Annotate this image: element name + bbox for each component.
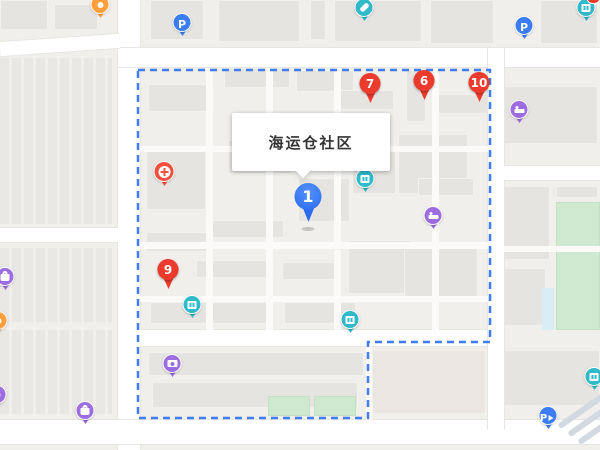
map-shape [432, 68, 439, 330]
poi-icon [346, 316, 355, 324]
map-shape [542, 288, 554, 330]
info-window-pointer [296, 164, 310, 178]
poi-parking-top-right[interactable] [516, 17, 533, 43]
map-shape [218, 0, 300, 42]
marker-tail [188, 312, 196, 322]
marker-head [511, 101, 528, 118]
marker-head [586, 368, 600, 385]
marker-shadow [302, 227, 315, 231]
marker-head [425, 207, 442, 224]
marker-tail [81, 418, 89, 428]
marker-number: 10 [471, 76, 488, 90]
marker-head: 6 [414, 70, 435, 91]
map-shape [556, 202, 600, 330]
marker-head [516, 17, 533, 34]
map-shape [148, 84, 214, 112]
map-viewport[interactable]: 1 7 6 [0, 0, 600, 450]
marker-pin-10[interactable]: 10 [469, 72, 490, 107]
marker-tail [419, 89, 429, 105]
marker-head [155, 162, 174, 181]
marker-number: 6 [420, 74, 428, 88]
marker-tail [582, 15, 590, 25]
poi-gcp-pharmacy[interactable] [356, 0, 373, 25]
marker-tail [0, 402, 1, 412]
map-shape [418, 178, 474, 196]
map-shape [310, 0, 326, 40]
poi-icon [167, 360, 177, 367]
marker-head [184, 296, 201, 313]
poi-dental-clinic[interactable] [155, 162, 174, 190]
marker-tail [302, 207, 314, 228]
road [118, 48, 600, 67]
map-shape [556, 186, 598, 198]
poi-icon [540, 406, 556, 425]
marker-tail [160, 180, 168, 190]
marker-head: 1 [578, 0, 595, 16]
marker-pin-9[interactable]: 9 [158, 259, 179, 294]
poi-haiyuncang[interactable] [357, 170, 374, 196]
poi-icon [81, 408, 90, 415]
marker-number: 9 [164, 263, 172, 277]
poi-parking-bottom-right[interactable] [540, 407, 557, 433]
info-window[interactable]: 海运仓社区 [232, 113, 390, 171]
road [118, 0, 140, 450]
marker-head [356, 0, 373, 16]
marker-pin-7[interactable]: 7 [360, 73, 381, 108]
poi-icon [582, 4, 591, 12]
marker-head [342, 311, 359, 328]
poi-wanguohui-fruit[interactable] [0, 268, 14, 294]
poi-icon [361, 175, 370, 183]
marker-head: 9 [158, 259, 179, 280]
map-shape [224, 68, 290, 88]
poi-beimencang[interactable] [342, 311, 359, 337]
poi-left-edge[interactable] [0, 386, 6, 412]
poi-icon [188, 301, 197, 309]
marker-head [540, 407, 557, 424]
poi-icon [97, 2, 103, 8]
map-shape [504, 268, 546, 326]
map-shape [430, 0, 494, 44]
marker-tail [590, 384, 598, 394]
poi-hengxiangmei-photo[interactable] [164, 355, 181, 381]
marker-number: 1 [302, 187, 313, 206]
marker-head: 10 [469, 72, 490, 93]
marker-head [0, 312, 7, 329]
poi-icon [520, 16, 528, 35]
road [504, 166, 600, 180]
map-shape [206, 68, 213, 330]
marker-head: 7 [360, 73, 381, 94]
marker-head: 1 [295, 183, 322, 210]
poi-restaurant[interactable] [0, 312, 7, 338]
map-shape [268, 396, 310, 416]
poi-noodle-shop[interactable] [92, 0, 109, 22]
marker-tail [96, 12, 104, 22]
marker-tail [361, 186, 369, 196]
map-shape [404, 248, 478, 302]
road [488, 48, 504, 430]
marker-tail [346, 327, 354, 337]
poi-icon [1, 274, 10, 281]
marker-tail [515, 117, 523, 127]
poi-icon [359, 2, 370, 13]
marker-head [0, 386, 6, 403]
road [140, 330, 490, 346]
marker-head [164, 355, 181, 372]
map-shape [504, 246, 600, 252]
map-shape [334, 0, 422, 42]
marker-tail [365, 92, 375, 108]
map-shape [314, 396, 356, 416]
marker-head [0, 268, 14, 285]
map-shape [0, 0, 48, 30]
map-shape [0, 58, 112, 224]
info-window-title: 海运仓社区 [268, 132, 353, 153]
marker-pin-6[interactable]: 6 [414, 70, 435, 105]
marker-head [357, 170, 374, 187]
map-shape [212, 220, 284, 238]
map-shape [140, 242, 488, 249]
poi-zhongqing-hotel[interactable] [511, 101, 528, 127]
poi-icon [158, 166, 170, 178]
marker-tail [474, 91, 484, 107]
road [0, 228, 118, 242]
marker-tail [163, 278, 173, 294]
map-shape [282, 262, 338, 280]
map-shape [0, 330, 112, 414]
poi-yishang-company[interactable] [586, 368, 600, 394]
marker-tail [429, 223, 437, 233]
poi-haiyuncang-inn[interactable] [425, 207, 442, 233]
marker-tail [0, 328, 2, 338]
marker-head [92, 0, 109, 13]
poi-parking-top-left[interactable] [174, 14, 191, 40]
poi-icon [0, 318, 1, 324]
map-shape [296, 70, 354, 92]
marker-head [77, 402, 94, 419]
poi-icon [428, 215, 438, 219]
poi-foyuan-jade[interactable] [77, 402, 94, 428]
map-shape [0, 248, 112, 322]
marker-tail [168, 371, 176, 381]
marker-tail [360, 15, 368, 25]
map-shape [372, 350, 486, 414]
poi-icon [590, 373, 599, 381]
poi-hanhai-haiyuncang[interactable]: 1 [578, 0, 595, 25]
poi-icon [514, 109, 524, 113]
poi-icon [178, 13, 186, 32]
marker-pin-1[interactable]: 1 [295, 183, 322, 231]
marker-number: 7 [366, 77, 374, 91]
marker-head [174, 14, 191, 31]
map-shape [366, 346, 372, 420]
road [0, 34, 120, 56]
poi-beimencang-unit[interactable] [184, 296, 201, 322]
map-shape [334, 250, 341, 330]
marker-tail [1, 284, 9, 294]
map-shape [266, 68, 273, 330]
